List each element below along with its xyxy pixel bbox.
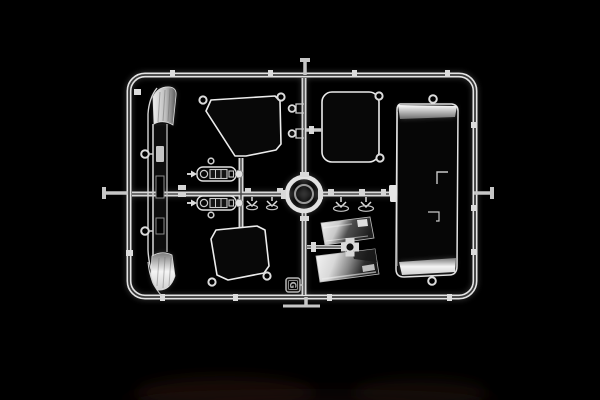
bottom-reflection xyxy=(120,376,500,400)
roof-lamp-housing-upper-part xyxy=(187,158,243,181)
sprue-letter-tag: G xyxy=(286,278,303,292)
side-window-part xyxy=(306,92,384,162)
rear-window-panel-part xyxy=(389,95,458,285)
door-window-lower-part xyxy=(208,226,270,286)
product-photo: G xyxy=(0,0,600,400)
mirror-assembly xyxy=(307,217,379,282)
sprue-letter: G xyxy=(287,282,297,289)
roof-lamp-housing-lower-part xyxy=(187,196,243,218)
door-window-upper-part xyxy=(199,93,284,156)
sprue-photo: G xyxy=(0,0,600,400)
